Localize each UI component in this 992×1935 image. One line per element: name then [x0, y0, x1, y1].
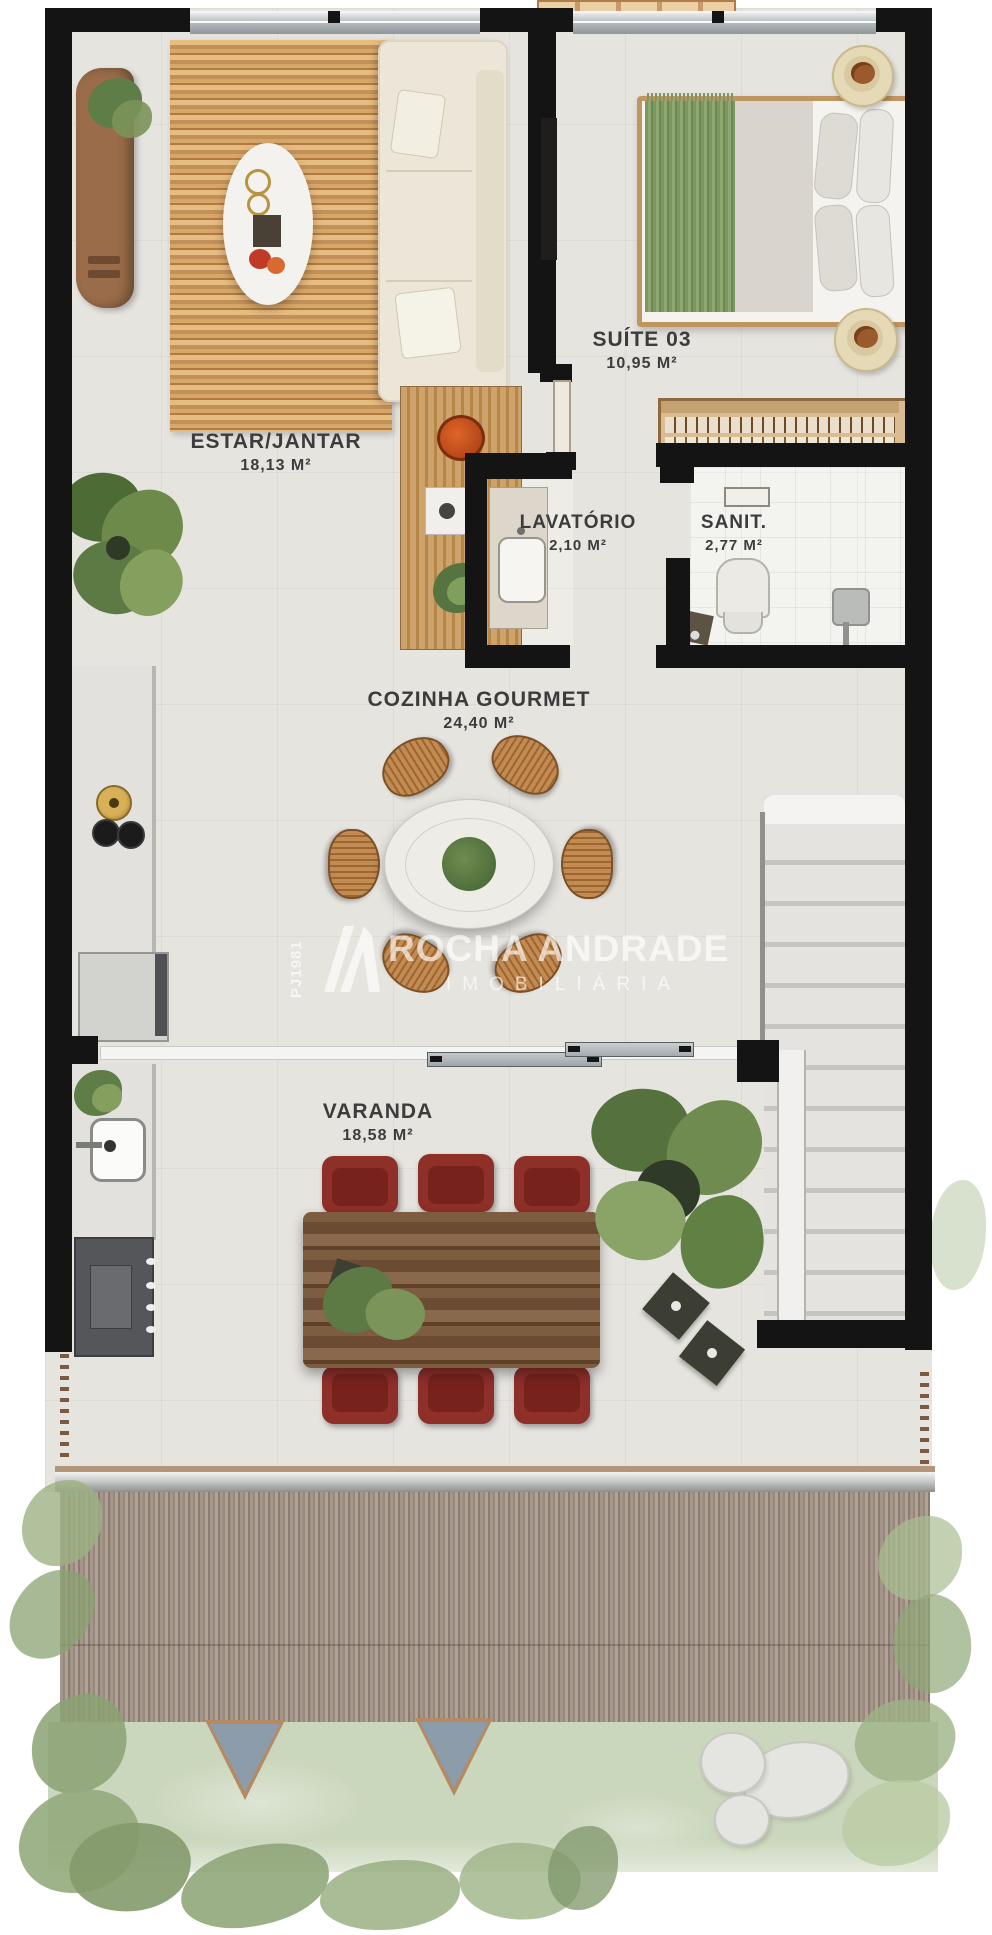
sink-drain [109, 798, 119, 808]
room-area: 10,95 M² [558, 355, 726, 373]
sliding-door-panel [565, 1042, 694, 1057]
room-area: 18,13 M² [166, 457, 386, 475]
wall-sanit-divider-stub [660, 462, 694, 483]
shower-head [832, 588, 870, 626]
window-suite [573, 11, 876, 34]
toilet-tank [716, 558, 770, 618]
watermark-registry: PJ1981 [288, 922, 304, 998]
hanger-row [665, 417, 895, 433]
room-area: 2,77 M² [686, 537, 782, 554]
chair-seat [332, 1374, 388, 1412]
toilet-bowl [723, 612, 763, 634]
floor-plan-page: { "rooms": [ {"id":"estar", "name":"ESTA… [0, 0, 992, 1920]
rattan-pouf-center [851, 62, 875, 84]
sideboard-drawer [88, 270, 120, 278]
wall-right [905, 8, 932, 1350]
room-label-cozinha-gourmet: COZINHA GOURMET 24,40 M² [360, 688, 598, 733]
kitchen-appliance [78, 952, 169, 1042]
watermark-logo-icon [320, 924, 382, 992]
varanda-chair [322, 1156, 398, 1214]
shower-arm [843, 622, 849, 646]
chair-seat [524, 1374, 580, 1412]
wall-stair-post-top [737, 1040, 779, 1082]
coffee-table [223, 143, 313, 305]
watermark-brand: ROCHA ANDRADE [388, 928, 729, 970]
cooktop-burner [117, 821, 145, 849]
wicker-chair [561, 829, 613, 899]
deck-metal-step [55, 1472, 935, 1492]
appliance-handle [155, 954, 167, 1036]
counter-bowl-sink [96, 785, 132, 821]
window-mullion [328, 11, 340, 23]
screen-dashes-right [920, 1372, 929, 1464]
room-name: VARANDA [295, 1100, 461, 1124]
room-label-estar-jantar: ESTAR/JANTAR 18,13 M² [166, 430, 386, 475]
garden-stone [714, 1794, 770, 1846]
suite-door-leaf [553, 380, 571, 460]
side-table-dot [669, 1299, 683, 1313]
wall-stub-varanda-left [72, 1036, 98, 1064]
wood-deck [60, 1492, 930, 1727]
stair-landing [764, 795, 905, 825]
varanda-chair [322, 1366, 398, 1424]
varanda-chair [418, 1366, 494, 1424]
grill-knob [146, 1258, 156, 1265]
pillow [856, 108, 895, 204]
chair-seat [524, 1168, 580, 1206]
varanda-faucet [76, 1142, 102, 1148]
wall-tv [541, 118, 557, 260]
coffee-table-ring-decor [247, 193, 270, 216]
room-area: 24,40 M² [360, 715, 598, 733]
grill [74, 1237, 154, 1357]
room-name: SUÍTE 03 [558, 328, 726, 352]
side-table-dot [705, 1346, 719, 1360]
room-name: LAVATÓRIO [492, 512, 664, 534]
sofa-back-cushions [476, 70, 504, 372]
chair-seat [332, 1168, 388, 1206]
wall-lavatorio-left [465, 453, 487, 668]
grill-knob [146, 1282, 156, 1289]
cooktop-burner [92, 819, 120, 847]
room-area: 2,10 M² [492, 537, 664, 554]
grill-grate [90, 1265, 132, 1329]
stair-handrail [760, 812, 765, 1048]
room-name: ESTAR/JANTAR [166, 430, 386, 454]
wall-varanda-bottom-right [757, 1320, 905, 1348]
wall-sanit-divider [666, 558, 690, 650]
blanket-fringe [645, 93, 735, 101]
watermark-subtitle: IMOBILIÁRIA [446, 974, 681, 996]
deck-seam [60, 1644, 930, 1646]
sofa-pillow [390, 89, 446, 159]
room-label-sanit: SANIT. 2,77 M² [686, 512, 782, 554]
wall-top-mid [480, 8, 573, 32]
sofa [378, 40, 508, 402]
bed-sheet [735, 101, 813, 312]
wall-sanit-bottom [656, 645, 905, 668]
flower-bowl [267, 257, 285, 274]
countertop-appliance [425, 487, 469, 535]
appliance-dial [439, 503, 455, 519]
sideboard-drawer [88, 256, 120, 264]
room-label-suite-03: SUÍTE 03 10,95 M² [558, 328, 726, 373]
foliage [930, 1180, 986, 1290]
room-label-varanda: VARANDA 18,58 M² [295, 1100, 461, 1145]
coffee-table-ring-decor [245, 169, 271, 195]
room-name: COZINHA GOURMET [360, 688, 598, 712]
bed-green-throw [645, 101, 735, 312]
door-jamb [546, 452, 576, 470]
rattan-pouf-center [854, 326, 878, 348]
pillow [813, 204, 858, 293]
room-name: SANIT. [686, 512, 782, 534]
rattan-pouf [832, 45, 894, 107]
sofa-throw [394, 287, 462, 360]
panel-end-cap [568, 1046, 580, 1052]
room-area: 18,58 M² [295, 1127, 461, 1145]
sofa-seam [386, 280, 472, 282]
varanda-chair [514, 1366, 590, 1424]
coffee-table-tray [253, 215, 281, 247]
window-glass [573, 21, 876, 23]
sanit-door-leaf [724, 487, 770, 507]
round-dining-table [384, 799, 554, 929]
table-centerpiece-plant [442, 837, 496, 891]
chair-seat [428, 1374, 484, 1412]
pillow [855, 204, 895, 298]
sofa-seam [386, 170, 472, 172]
bin-lid-knob [690, 630, 701, 641]
varanda-chair [418, 1154, 494, 1212]
window-mullion [712, 11, 724, 23]
varanda-faucet-knob [104, 1140, 116, 1152]
wall-lavatorio-bottom [465, 645, 570, 668]
stair-guard-rail [777, 1050, 806, 1320]
wardrobe-shelf [661, 401, 899, 413]
bed [637, 96, 913, 327]
panel-end-cap [430, 1056, 442, 1062]
chair-seat [428, 1166, 484, 1204]
pillow [813, 111, 860, 201]
varanda-chair [514, 1156, 590, 1214]
plant-pot [106, 536, 130, 560]
panel-end-cap [679, 1046, 691, 1052]
screen-dashes-left [60, 1354, 69, 1464]
varanda-sink [90, 1118, 146, 1182]
room-label-lavatorio: LAVATÓRIO 2,10 M² [492, 512, 664, 554]
grill-knob [146, 1326, 156, 1333]
wicker-chair [328, 829, 380, 899]
wall-left [45, 8, 72, 1352]
rattan-pouf [834, 308, 898, 372]
grill-knob [146, 1304, 156, 1311]
